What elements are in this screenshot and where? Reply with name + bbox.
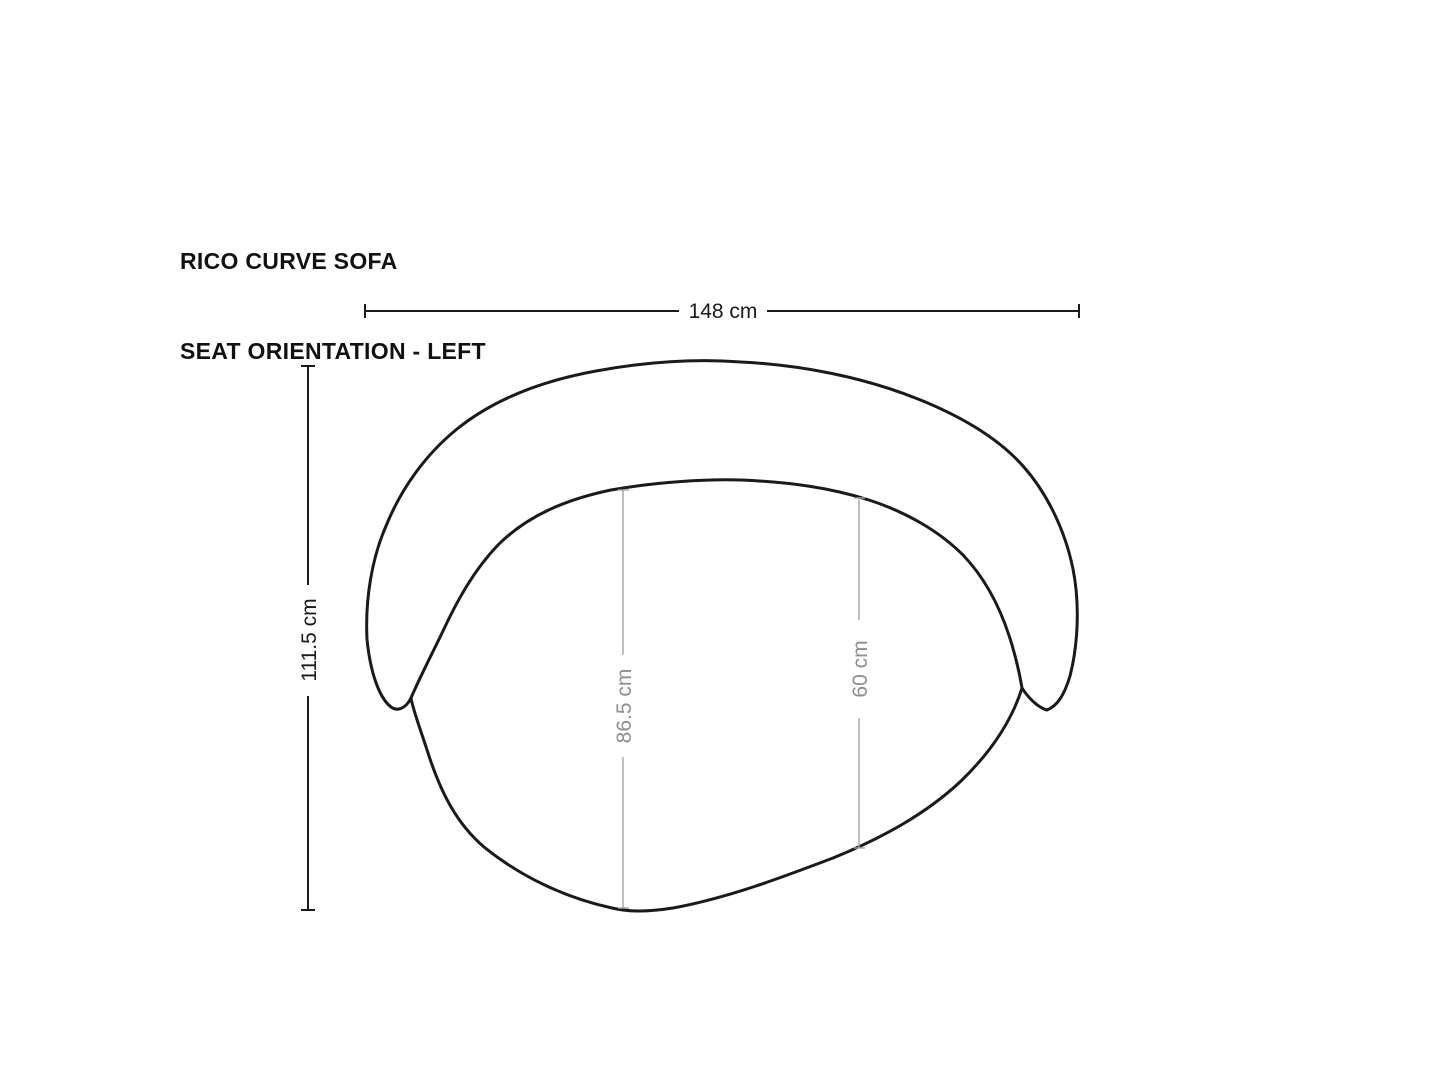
sofa-outer-outline — [367, 361, 1078, 911]
inner-seat-width-label: 60 cm — [849, 640, 872, 697]
overall-width-dimension: 148 cm — [365, 300, 1079, 323]
sofa-backrest-inner-line — [411, 480, 1022, 698]
inner-depth-label: 86.5 cm — [613, 669, 636, 744]
sofa-dimension-diagram-page: RICO CURVE SOFA SEAT ORIENTATION - LEFT … — [0, 0, 1445, 1087]
overall-width-label: 148 cm — [689, 300, 758, 323]
sofa-top-view-drawing: 148 cm 111.5 cm 86.5 cm 60 cm — [0, 0, 1445, 1087]
overall-depth-label: 111.5 cm — [298, 598, 321, 681]
overall-depth-dimension: 111.5 cm — [298, 366, 321, 910]
inner-depth-dimension: 86.5 cm — [613, 490, 636, 908]
inner-seat-width-dimension: 60 cm — [849, 498, 872, 848]
